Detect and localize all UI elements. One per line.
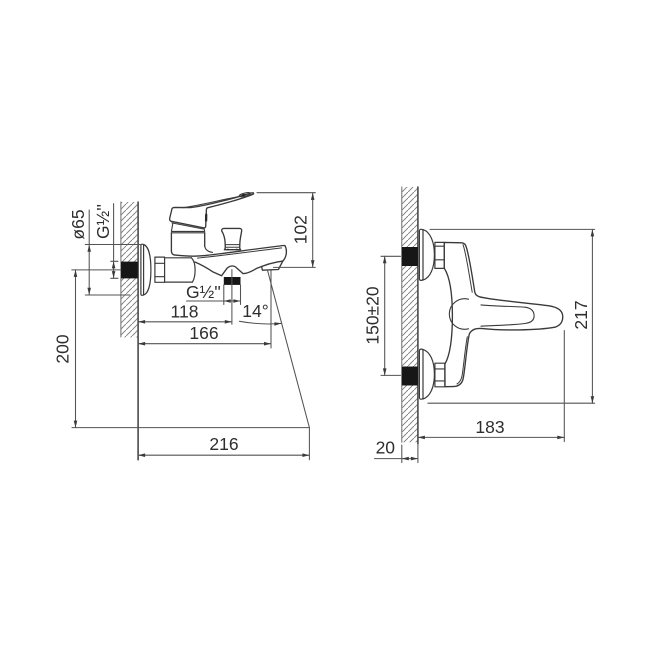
svg-text:G½'': G½'' — [93, 204, 113, 239]
svg-text:166: 166 — [189, 323, 218, 343]
svg-text:102: 102 — [291, 215, 311, 244]
svg-text:14°: 14° — [242, 301, 268, 321]
svg-text:217: 217 — [571, 300, 591, 329]
svg-text:150±20: 150±20 — [362, 286, 382, 345]
svg-text:216: 216 — [209, 434, 238, 454]
svg-text:G½'': G½'' — [186, 282, 221, 302]
svg-text:183: 183 — [475, 417, 504, 437]
svg-text:118: 118 — [171, 301, 199, 321]
svg-text:ø65: ø65 — [68, 209, 88, 239]
svg-text:200: 200 — [52, 334, 72, 363]
svg-text:20: 20 — [376, 438, 396, 458]
